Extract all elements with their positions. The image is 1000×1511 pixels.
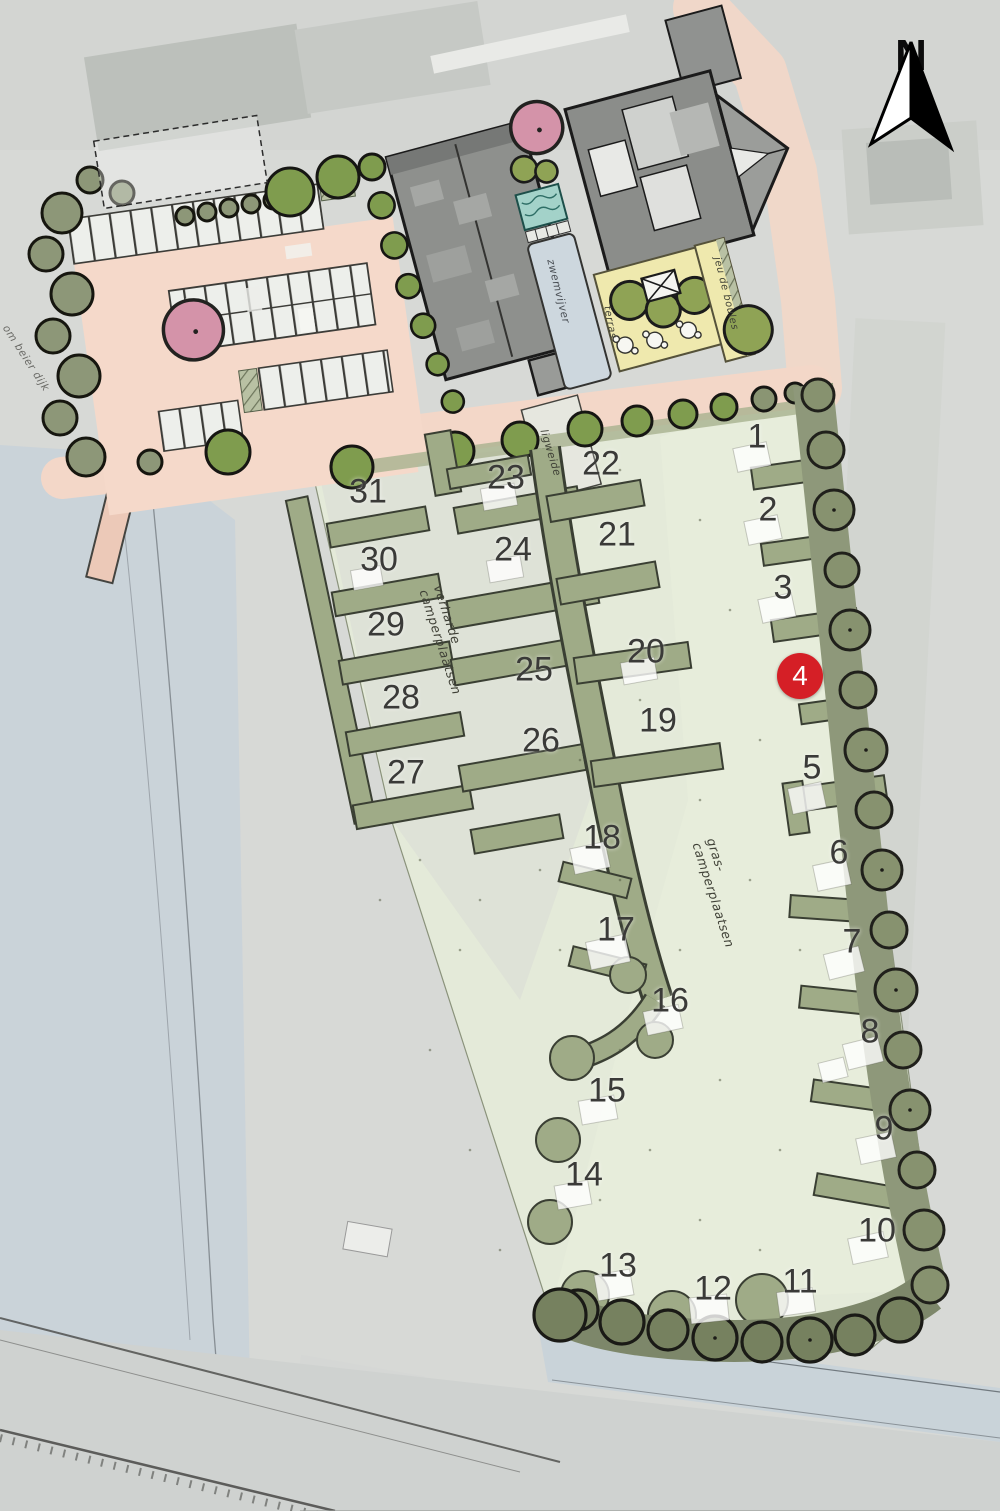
selected-pitch-marker[interactable]: 4 (777, 653, 823, 699)
pitch-label: 1 (748, 418, 767, 457)
pitch-label: 24 (494, 531, 532, 570)
pitch-label: 30 (360, 541, 398, 580)
pitch-label: 8 (861, 1013, 880, 1052)
pitch-label: 16 (651, 982, 689, 1021)
compass-north-arrow: N (863, 36, 959, 186)
pitch-label: 12 (694, 1270, 732, 1309)
pitch-label: 17 (597, 911, 635, 950)
pitch-label: 21 (598, 516, 636, 555)
pitch-label: 18 (583, 819, 621, 858)
pitch-label: 20 (627, 633, 665, 672)
pitch-label: 27 (387, 754, 425, 793)
pitch-label: 13 (599, 1247, 637, 1286)
pitch-label: 23 (487, 459, 525, 498)
pitch-label: 10 (858, 1212, 896, 1251)
pitch-label: 15 (588, 1072, 626, 1111)
pitch-label: 5 (803, 749, 822, 788)
selected-pitch-number: 4 (792, 660, 808, 692)
pitch-label: 9 (875, 1110, 894, 1149)
site-plan-drawing (0, 0, 1000, 1511)
pitch-label: 14 (565, 1156, 603, 1195)
pitch-label: 2 (759, 491, 778, 530)
pitch-label: 31 (349, 473, 387, 512)
pitch-label: 3 (774, 569, 793, 608)
campsite-site-plan: N verharde camperplaatsen gras- camperpl… (0, 0, 1000, 1511)
pitch-label: 28 (382, 679, 420, 718)
pitch-label: 6 (830, 834, 849, 873)
pitch-label: 22 (582, 445, 620, 484)
pitch-label: 19 (639, 702, 677, 741)
pitch-label: 11 (782, 1263, 817, 1302)
north-arrow-icon (863, 36, 959, 154)
pitch-label: 29 (367, 606, 405, 645)
pitch-label: 25 (515, 651, 553, 690)
pitch-label: 26 (522, 722, 560, 761)
pitch-label: 7 (843, 923, 862, 962)
